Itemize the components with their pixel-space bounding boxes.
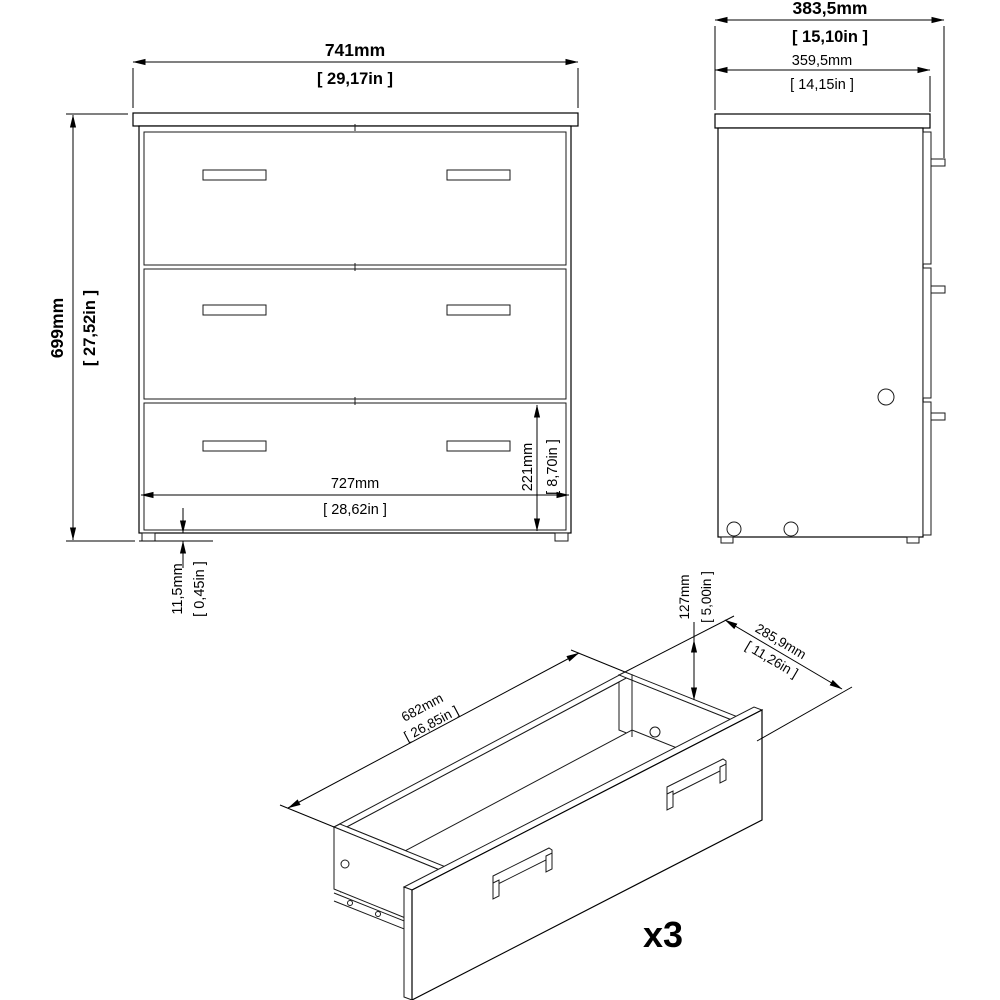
dim-total-depth-mm: 383,5mm [793, 0, 868, 18]
dim-plinth-height-inch: [ 0,45in ] [192, 561, 208, 617]
foot [142, 533, 155, 541]
side-drawer-front-edge-1 [923, 132, 931, 264]
cam-lock-hole [878, 389, 894, 405]
rail-screw [376, 912, 381, 917]
dim-body-depth-inch: [ 14,15in ] [790, 77, 854, 93]
drawer-front-panel-side [404, 887, 412, 1000]
dim-front-height: 699mm [ 27,52in ] [47, 114, 135, 541]
dim-front-width-mm: 741mm [325, 40, 385, 60]
foot [721, 537, 733, 543]
side-handle-profile [931, 159, 945, 166]
drawer-handle [203, 441, 266, 451]
side-body [718, 128, 923, 537]
drawer-handle [203, 170, 266, 180]
side-top-panel [715, 114, 930, 128]
dowel-hole [727, 522, 741, 536]
drawer-handle [203, 305, 266, 315]
drawer-3d-view: 682mm [ 26,85in ] 285,9mm [ 11,26in ] 12… [280, 571, 852, 1000]
dowel-hole [784, 522, 798, 536]
dim-drawer-front-width-mm: 727mm [331, 476, 379, 492]
drawer-handle [447, 170, 510, 180]
rail-screw [348, 901, 353, 906]
screw-hole [341, 860, 349, 868]
side-drawer-front-edge-3 [923, 402, 931, 535]
dim-drawer-side-height-mm: 127mm [677, 574, 692, 619]
dim-front-height-mm: 699mm [47, 298, 67, 358]
screw-hole [650, 727, 660, 737]
drawer-handle [447, 305, 510, 315]
dim-front-width-inch: [ 29,17in ] [317, 70, 393, 88]
technical-drawing-canvas: 741mm [ 29,17in ] 699mm [ 27,52in ] 727m… [0, 0, 1000, 1000]
dim-drawer-front-width-inch: [ 28,62in ] [323, 502, 387, 518]
dim-front-height-inch: [ 27,52in ] [81, 290, 99, 366]
front-view: 741mm [ 29,17in ] 699mm [ 27,52in ] 727m… [47, 40, 578, 617]
drawer-quantity-label: x3 [643, 914, 683, 955]
side-handle-profile [931, 413, 945, 420]
dim-plinth-height-mm: 11,5mm [170, 563, 186, 614]
drawer-front-2 [144, 269, 566, 399]
foot [555, 533, 568, 541]
side-drawer-front-edge-2 [923, 268, 931, 398]
drawer-front-1 [144, 132, 566, 265]
dim-bottom-drawer-height-inch: [ 8,70in ] [545, 439, 561, 495]
drawer-handle [447, 441, 510, 451]
dim-total-depth-inch: [ 15,10in ] [792, 28, 868, 46]
dim-body-depth: 359,5mm [ 14,15in ] [715, 53, 930, 112]
foot [907, 537, 919, 543]
side-view: 383,5mm [ 15,10in ] 359,5mm [ 14,15in ] [715, 0, 945, 543]
dim-body-depth-mm: 359,5mm [792, 53, 852, 69]
dim-drawer-side-height-inch: [ 5,00in ] [699, 571, 714, 623]
technical-drawing-page: 741mm [ 29,17in ] 699mm [ 27,52in ] 727m… [0, 0, 1000, 1000]
dim-front-width: 741mm [ 29,17in ] [133, 40, 578, 108]
side-handle-profile [931, 286, 945, 293]
dim-bottom-drawer-height-mm: 221mm [520, 443, 536, 491]
